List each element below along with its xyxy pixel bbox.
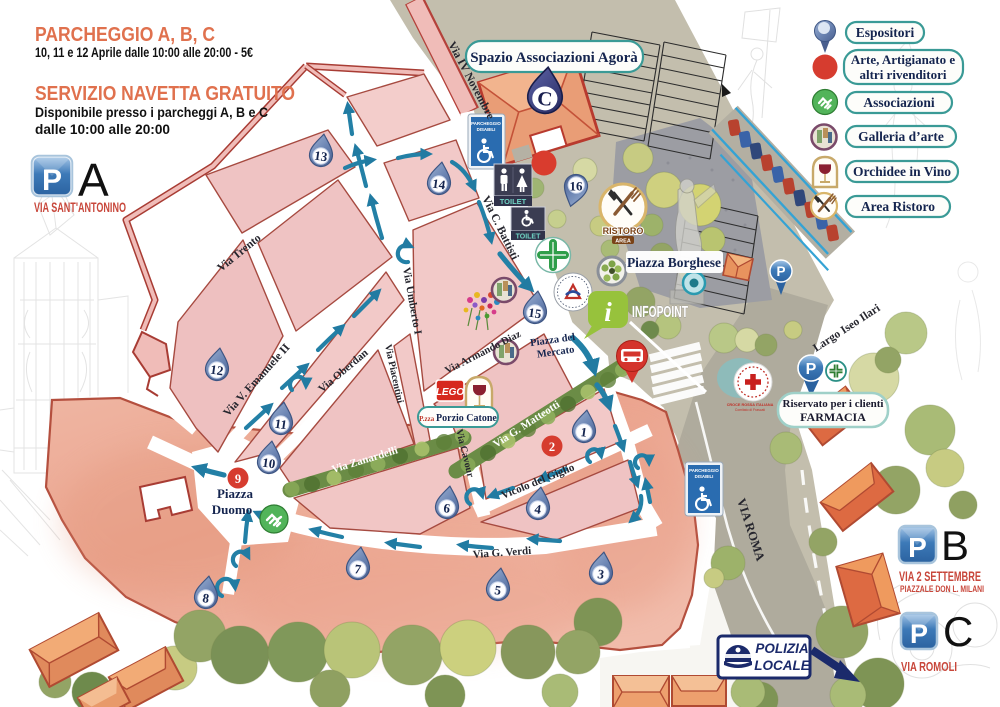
svg-text:Area Ristoro: Area Ristoro: [861, 199, 935, 214]
svg-text:POLIZIA: POLIZIA: [755, 641, 808, 656]
svg-text:C: C: [943, 608, 973, 655]
svg-text:B: B: [941, 522, 969, 569]
svg-text:P: P: [806, 361, 817, 378]
svg-text:RISTORO: RISTORO: [603, 226, 644, 236]
svg-text:Galleria d’arte: Galleria d’arte: [858, 129, 944, 144]
svg-text:Duomo: Duomo: [212, 502, 252, 517]
svg-text:TOILET: TOILET: [516, 234, 541, 241]
svg-text:altri rivenditori: altri rivenditori: [859, 67, 946, 82]
svg-text:SERVIZIO NAVETTA GRATUITO: SERVIZIO NAVETTA GRATUITO: [35, 83, 295, 105]
svg-text:TOILET: TOILET: [500, 197, 527, 206]
svg-text:Arte, Artigianato e: Arte, Artigianato e: [851, 52, 956, 67]
svg-text:P: P: [908, 532, 927, 563]
svg-text:P: P: [42, 164, 62, 197]
svg-text:Espositori: Espositori: [856, 25, 915, 40]
svg-text:PARCHEGGIO: PARCHEGGIO: [689, 468, 719, 473]
svg-text:16: 16: [570, 179, 584, 194]
svg-text:13: 13: [313, 148, 328, 165]
svg-text:CROCE ROSSA ITALIANA: CROCE ROSSA ITALIANA: [727, 403, 774, 407]
svg-text:Riservato per i clienti: Riservato per i clienti: [783, 398, 884, 410]
svg-text:PIAZZALE DON L. MILANI: PIAZZALE DON L. MILANI: [900, 584, 984, 594]
svg-text:15: 15: [527, 305, 542, 322]
svg-text:FARMACIA: FARMACIA: [800, 410, 866, 424]
svg-text:VIA 2 SETTEMBRE: VIA 2 SETTEMBRE: [899, 568, 981, 584]
svg-text:Orchidee in Vino: Orchidee in Vino: [853, 164, 951, 179]
svg-text:LEGO: LEGO: [436, 387, 465, 398]
svg-text:Associazioni: Associazioni: [863, 95, 935, 110]
svg-text:P: P: [910, 619, 928, 649]
svg-text:i: i: [604, 297, 612, 327]
svg-text:P: P: [776, 264, 785, 279]
svg-text:VIA ROMOLI: VIA ROMOLI: [901, 659, 957, 674]
svg-text:PARCHEGGIO A, B, C: PARCHEGGIO A, B, C: [35, 24, 215, 46]
svg-text:Disponibile presso i parcheggi: Disponibile presso i parcheggi A, B e C: [35, 105, 268, 120]
svg-text:P.zza Porzio Catone: P.zza Porzio Catone: [419, 413, 497, 424]
svg-text:14: 14: [431, 176, 446, 193]
svg-text:9: 9: [235, 472, 241, 486]
svg-text:INFOPOINT: INFOPOINT: [632, 304, 688, 321]
svg-text:Piazza: Piazza: [217, 486, 254, 501]
svg-text:PARCHEGGIO: PARCHEGGIO: [471, 121, 501, 126]
svg-text:AREA: AREA: [615, 239, 631, 245]
svg-text:2: 2: [549, 440, 555, 454]
svg-text:10, 11 e 12 Aprile dalle 10:00: 10, 11 e 12 Aprile dalle 10:00 alle 20:0…: [35, 45, 253, 60]
svg-text:VIA SANT'ANTONINO: VIA SANT'ANTONINO: [34, 199, 126, 215]
svg-text:LOCALE: LOCALE: [754, 658, 810, 673]
svg-text:C: C: [536, 88, 553, 111]
svg-text:Piazza Borghese: Piazza Borghese: [627, 255, 721, 270]
svg-text:Spazio Associazioni Agorà: Spazio Associazioni Agorà: [470, 50, 638, 66]
svg-text:12: 12: [209, 362, 224, 379]
svg-text:Comitato di Frascati: Comitato di Frascati: [735, 408, 765, 412]
svg-text:dalle 10:00 alle 20:00: dalle 10:00 alle 20:00: [35, 122, 170, 137]
svg-text:DISABILI: DISABILI: [477, 127, 496, 132]
svg-text:11: 11: [274, 416, 288, 433]
svg-text:DISABILI: DISABILI: [695, 474, 714, 479]
svg-text:10: 10: [261, 455, 276, 472]
